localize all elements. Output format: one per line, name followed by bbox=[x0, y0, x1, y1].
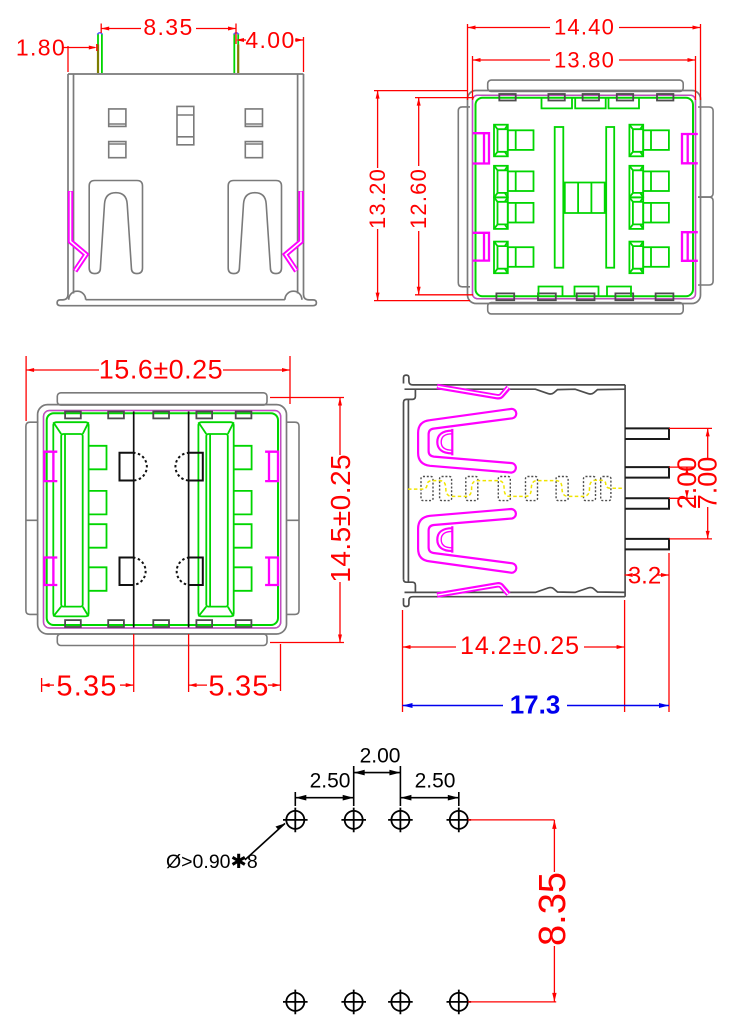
svg-text:3.2: 3.2 bbox=[628, 563, 661, 590]
svg-text:1.80: 1.80 bbox=[16, 35, 66, 61]
svg-text:14.40: 14.40 bbox=[554, 15, 615, 40]
svg-text:5.35: 5.35 bbox=[56, 671, 117, 703]
svg-text:2.50: 2.50 bbox=[310, 770, 351, 793]
svg-text:2.00: 2.00 bbox=[360, 745, 401, 768]
svg-text:13.20: 13.20 bbox=[365, 168, 390, 229]
svg-text:15.6±0.25: 15.6±0.25 bbox=[99, 355, 223, 385]
svg-text:5.35: 5.35 bbox=[208, 671, 269, 703]
svg-text:14.5±0.25: 14.5±0.25 bbox=[325, 454, 356, 583]
svg-text:2.00: 2.00 bbox=[672, 457, 702, 510]
svg-text:13.80: 13.80 bbox=[554, 48, 615, 73]
svg-text:Ø>0.90✱8: Ø>0.90✱8 bbox=[166, 851, 258, 873]
svg-text:4.00: 4.00 bbox=[245, 27, 295, 53]
svg-text:12.60: 12.60 bbox=[406, 168, 431, 229]
svg-text:8.35: 8.35 bbox=[532, 872, 574, 946]
svg-text:8.35: 8.35 bbox=[143, 14, 193, 40]
svg-text:14.2±0.25: 14.2±0.25 bbox=[460, 632, 580, 660]
svg-text:2.50: 2.50 bbox=[415, 770, 456, 793]
svg-text:17.3: 17.3 bbox=[510, 690, 561, 720]
